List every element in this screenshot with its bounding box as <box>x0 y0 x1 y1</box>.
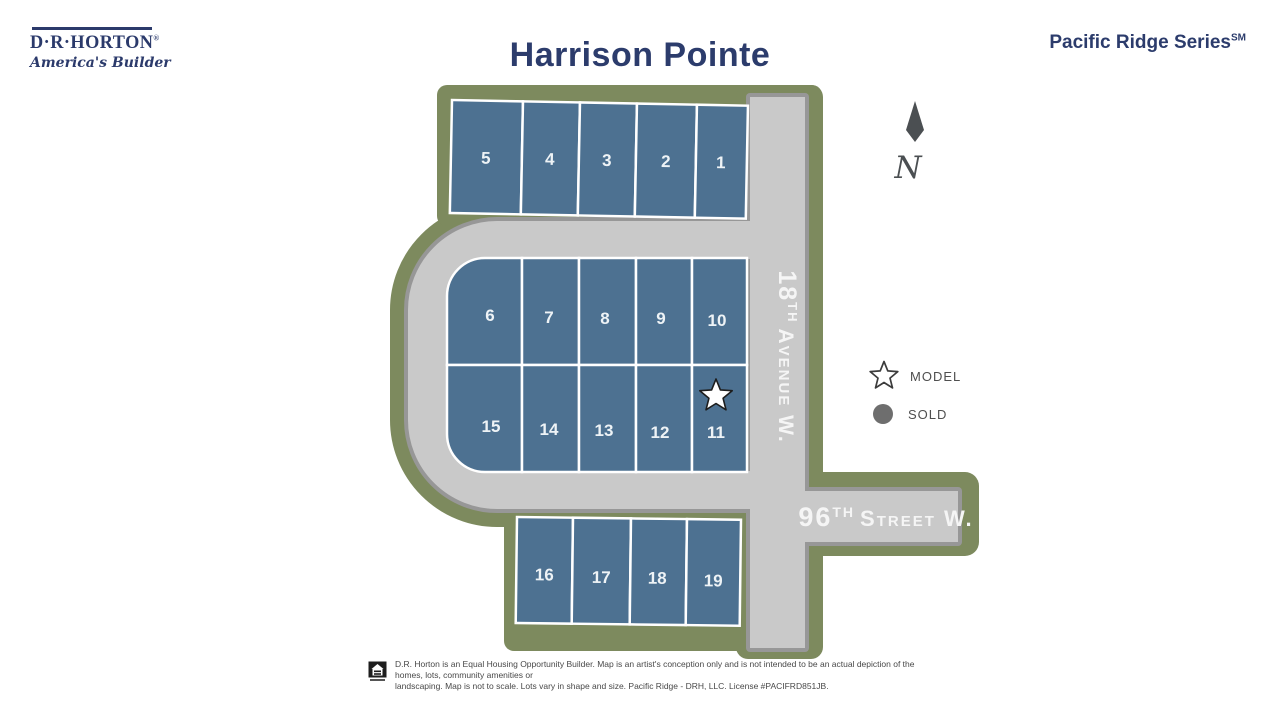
lot-block-middle: 6 7 8 9 10 15 14 13 12 11 <box>447 258 747 472</box>
lot-17[interactable]: 17 <box>572 518 631 625</box>
north-label: N <box>893 150 923 186</box>
street-name: Avenue W. <box>774 328 797 443</box>
lot-number: 8 <box>600 309 609 328</box>
lot-11[interactable]: 11 <box>692 365 747 472</box>
equal-housing-icon <box>368 661 387 682</box>
lot-18[interactable]: 18 <box>630 518 687 625</box>
lot-3[interactable]: 3 <box>578 102 637 216</box>
lot-number: 4 <box>545 150 555 169</box>
lot-7[interactable]: 7 <box>522 258 579 365</box>
lot-13[interactable]: 13 <box>579 365 636 472</box>
street-ordinal: TH <box>832 504 855 520</box>
lot-19[interactable]: 19 <box>686 519 741 626</box>
lot-number: 15 <box>482 417 501 436</box>
street-label-18th-avenue: 18THAvenue W. <box>773 270 801 443</box>
street-number: 18 <box>773 270 801 302</box>
disclaimer: D.R. Horton is an Equal Housing Opportun… <box>368 659 943 692</box>
street-name: Street W. <box>860 506 974 531</box>
street-ordinal: TH <box>785 302 800 323</box>
lot-number: 17 <box>592 568 611 587</box>
lot-number: 7 <box>544 308 553 327</box>
legend-model-label: MODEL <box>910 369 961 384</box>
legend: MODEL SOLD <box>868 360 961 436</box>
legend-model-row: MODEL <box>868 360 961 392</box>
lot-number: 19 <box>704 571 723 590</box>
lot-number: 10 <box>708 311 727 330</box>
site-map-page: D·R·HORTON® America's Builder Harrison P… <box>0 0 1280 720</box>
lot-6[interactable]: 6 <box>447 258 522 365</box>
lot-row-top: 5 4 3 2 1 <box>450 100 748 219</box>
sold-dot-icon <box>873 404 893 424</box>
lot-1[interactable]: 1 <box>695 105 748 219</box>
lot-14[interactable]: 14 <box>522 365 579 472</box>
lot-number: 2 <box>661 152 671 171</box>
lot-number: 16 <box>535 565 554 584</box>
lot-number: 3 <box>602 151 612 170</box>
lot-row-bottom: 16 17 18 19 <box>516 517 741 626</box>
lot-5[interactable]: 5 <box>450 100 523 214</box>
lot-15[interactable]: 15 <box>447 365 522 472</box>
legend-sold-row: SOLD <box>868 398 961 430</box>
lot-4[interactable]: 4 <box>521 101 580 215</box>
lot-16[interactable]: 16 <box>516 517 573 624</box>
lot-8[interactable]: 8 <box>579 258 636 365</box>
lot-2[interactable]: 2 <box>635 104 697 218</box>
lot-number: 6 <box>485 306 494 325</box>
lot-number: 11 <box>707 423 725 442</box>
lot-9[interactable]: 9 <box>636 258 692 365</box>
north-arrow-icon <box>906 101 924 142</box>
north-arrow: N <box>893 101 924 186</box>
disclaimer-text: D.R. Horton is an Equal Housing Opportun… <box>395 659 943 692</box>
lot-number: 9 <box>656 309 665 328</box>
lot-10[interactable]: 10 <box>692 258 747 365</box>
model-star-icon <box>868 360 900 392</box>
lot-number: 5 <box>481 149 491 168</box>
site-map: 18THAvenue W. 96THStreet W. 5 4 3 2 1 6 … <box>0 0 1280 720</box>
disclaimer-line-1: D.R. Horton is an Equal Housing Opportun… <box>395 659 943 681</box>
lot-number: 1 <box>716 153 726 172</box>
lot-12[interactable]: 12 <box>636 365 692 472</box>
disclaimer-line-2: landscaping. Map is not to scale. Lots v… <box>395 681 943 692</box>
lot-number: 12 <box>651 423 670 442</box>
lot-number: 18 <box>648 569 667 588</box>
street-number: 96 <box>798 502 832 532</box>
lot-number: 13 <box>595 421 614 440</box>
street-label-96th-street: 96THStreet W. <box>798 502 973 532</box>
legend-sold-label: SOLD <box>908 407 947 422</box>
lot-number: 14 <box>540 420 559 439</box>
